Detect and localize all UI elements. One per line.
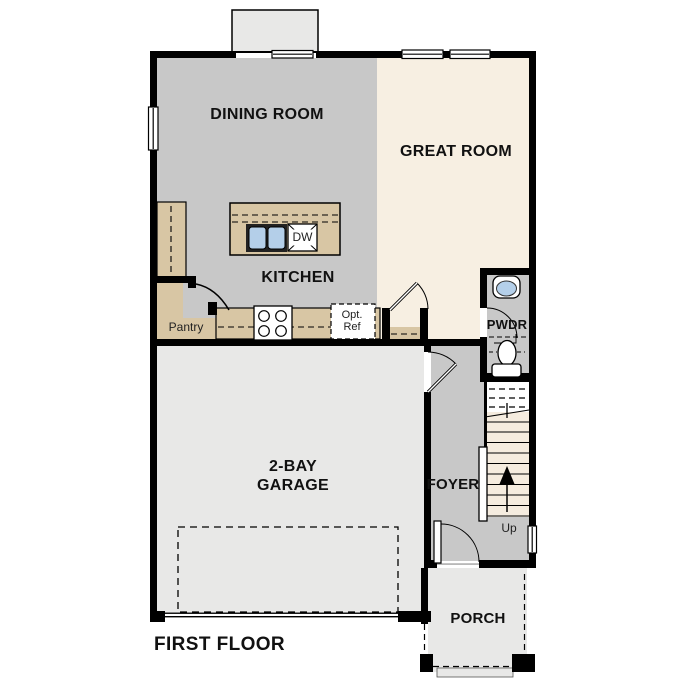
opt-ref-label: Opt. Ref [332,309,372,333]
toilet-tank [492,364,521,377]
pwdr-sink-bowl [497,281,517,296]
dishwasher-label: DW [288,230,317,244]
bay-window-bump [232,10,318,52]
kitchen-label: KITCHEN [233,268,363,287]
sink-basin [268,227,285,249]
garage-label: 2-BAY GARAGE [248,457,338,495]
garage-door-line [165,613,401,614]
garage-door-line [165,616,401,617]
dining-room-label: DINING ROOM [207,105,327,124]
up-label: Up [494,521,524,535]
foyer-label: FOYER [424,476,482,494]
powder-room-label: PWDR [484,317,530,333]
front-door-leaf [434,521,441,563]
floor-plan-graphic [0,0,687,687]
front-door-threshold [437,564,479,565]
sink-basin [249,227,266,249]
closet-floor [390,308,420,327]
floor-title: FIRST FLOOR [154,634,374,657]
porch-step [437,668,513,677]
porch-label: PORCH [432,610,524,628]
great-room-label: GREAT ROOM [396,142,516,161]
floor-plan: DINING ROOM GREAT ROOM KITCHEN Pantry Op… [0,0,687,687]
toilet-bowl [498,341,516,366]
pantry-label: Pantry [160,320,212,334]
